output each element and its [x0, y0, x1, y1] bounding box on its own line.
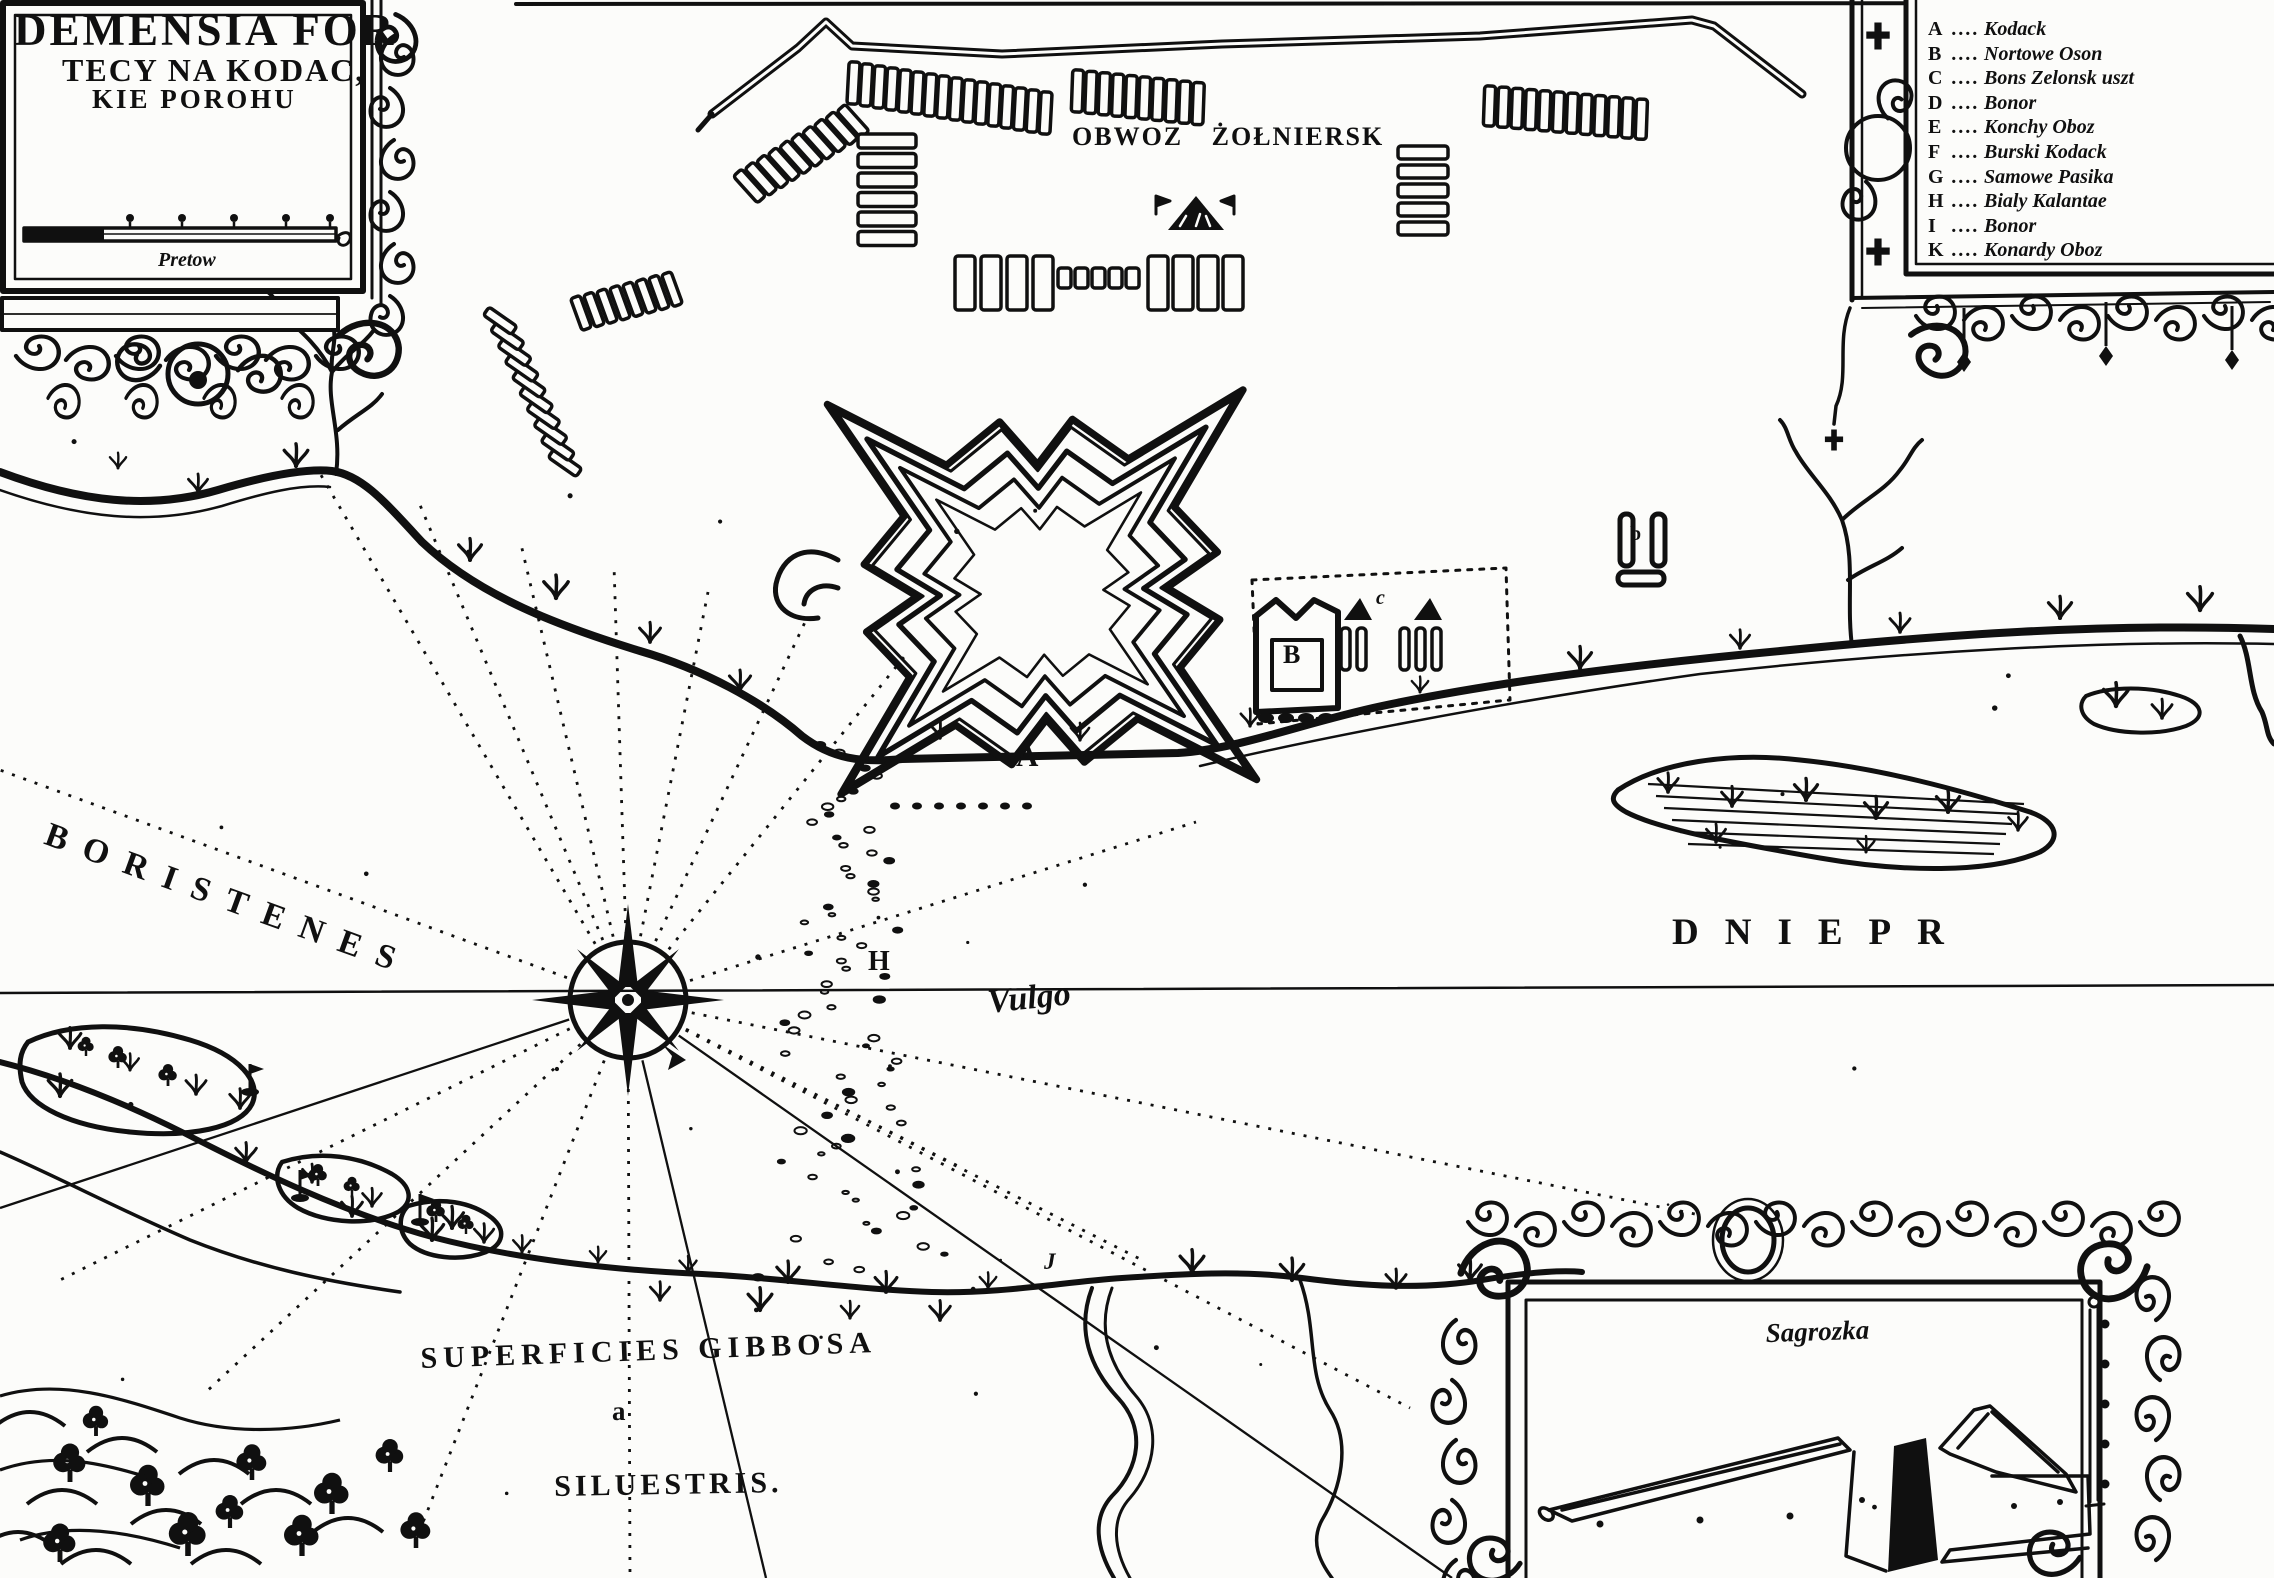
survey-ray	[690, 822, 1196, 981]
paper-speck	[1992, 705, 1997, 710]
paper-speck	[971, 1287, 976, 1292]
rapids-stone	[872, 1229, 881, 1234]
rapids-stone	[1022, 803, 1032, 810]
scroll-ornament	[1756, 1203, 1795, 1236]
rapids-stone	[868, 889, 879, 895]
scroll-ornament	[1468, 1203, 1507, 1236]
rapids-stone	[842, 1191, 849, 1194]
camp-barrack	[858, 154, 916, 168]
legend-letter: C	[1928, 67, 1952, 90]
scroll-ornament	[1660, 1203, 1699, 1236]
rapids-stone	[854, 1267, 864, 1272]
camp-barrack	[1497, 87, 1509, 127]
legend-entry: A....Kodack	[1928, 18, 2258, 43]
rapids-stone	[818, 1152, 825, 1155]
camp-barrack	[1398, 165, 1448, 178]
rapids-stone	[843, 1089, 854, 1096]
hill-mound	[27, 1490, 97, 1504]
camp-barrack	[1192, 82, 1204, 124]
camp-barrack	[1126, 268, 1139, 288]
camp-barrack	[1138, 77, 1150, 119]
scroll-ornament	[1840, 178, 1879, 222]
rapids-stone	[912, 1167, 920, 1171]
camp-barrack	[1075, 268, 1088, 288]
camp-barrack	[1223, 256, 1243, 310]
camp-barrack	[1566, 93, 1578, 133]
rapids-stone	[808, 1175, 816, 1180]
scale-tick	[230, 214, 238, 222]
pennant-base	[241, 1088, 259, 1096]
rapids-stone	[1000, 803, 1010, 810]
rapids-stone	[863, 1044, 869, 1047]
camp-barrack	[1092, 268, 1105, 288]
rapids-stone	[825, 812, 833, 816]
tassel-ornament	[2225, 350, 2239, 370]
tassel-ornament	[2099, 346, 2113, 366]
tree-glyph	[236, 1444, 266, 1480]
camp-barrack	[1552, 92, 1564, 132]
rapids-stone	[822, 1113, 832, 1118]
ruler-tick	[2101, 1360, 2110, 1369]
scale-tick	[126, 214, 134, 222]
rapids-stone	[853, 1199, 859, 1202]
rapids-stone	[864, 827, 874, 833]
scroll-ornament	[66, 347, 109, 380]
grass-tuft	[650, 1282, 669, 1302]
rapids-stone	[941, 1253, 947, 1256]
scale-bar-label: Pretow	[158, 250, 216, 270]
rapids-stone	[874, 996, 885, 1002]
rapids-stone	[789, 1027, 800, 1033]
rapids-stone	[897, 1212, 909, 1219]
survey-ray	[656, 620, 806, 941]
camp-barrack	[962, 80, 975, 123]
map-sheet: DEMENSIA FOR TECY NA KODAC, KIE POROHU P…	[0, 0, 2274, 1578]
tree-glyph	[376, 1439, 404, 1472]
scroll-ornament	[381, 140, 414, 179]
legend-entry: E....Konchy Oboz	[1928, 116, 2258, 141]
grass-tuft	[284, 444, 307, 468]
scale-tick	[326, 214, 334, 222]
camp-barrack	[1058, 268, 1071, 288]
camp-barrack	[1621, 98, 1633, 138]
grass-tuft	[841, 1301, 859, 1320]
survey-ray	[318, 470, 595, 944]
legend-leader: ....	[1952, 43, 1980, 66]
title-line-1: DEMENSIA FOR	[14, 8, 396, 53]
camp-small-letter: c	[1376, 588, 1385, 608]
legend-leader: ....	[1952, 67, 1980, 90]
rapids-letter: H	[868, 948, 890, 976]
rapids-stone	[884, 858, 894, 863]
rapids-stone	[801, 921, 808, 925]
scroll-ornament	[1612, 1213, 1651, 1246]
scroll-ornament	[1996, 1213, 2035, 1246]
legend-leader: ....	[1952, 239, 1980, 262]
scroll-ornament	[2060, 307, 2099, 340]
tree-glyph	[158, 1064, 176, 1086]
fortlet-bar	[1341, 628, 1350, 670]
camp-barrack	[1173, 256, 1193, 310]
scroll-ornament	[2044, 1203, 2083, 1236]
fortlet-bar	[1357, 628, 1366, 670]
survey-ray	[669, 652, 908, 949]
rapids-stone	[872, 898, 879, 901]
cross-ornament	[1866, 239, 1889, 266]
rapids-stone	[863, 1222, 869, 1225]
camp-barrack	[1085, 71, 1097, 113]
rapids-stone	[860, 765, 870, 770]
survey-ray	[420, 505, 603, 940]
scroll-ornament	[2012, 297, 2051, 330]
scroll-ornament	[126, 385, 157, 418]
rapids-stone	[857, 943, 866, 948]
scroll-ornament	[2140, 1203, 2179, 1236]
fortlet-bar	[1416, 628, 1425, 670]
paper-speck	[72, 439, 77, 444]
scroll-ornament	[371, 192, 404, 231]
scroll-ornament	[1433, 1380, 1466, 1423]
rapids-stone	[752, 1274, 763, 1280]
tree-glyph	[83, 1406, 108, 1436]
rapids-stone	[890, 803, 900, 810]
tree-glyph	[284, 1515, 319, 1556]
ruler-tick	[2101, 1400, 2110, 1409]
riverside-building	[1618, 572, 1664, 585]
tree-glyph	[130, 1465, 165, 1506]
camp-barrack	[858, 212, 916, 226]
fortlet-mark	[1298, 713, 1314, 723]
rapids-stone	[846, 874, 854, 878]
rapids-stone	[956, 803, 966, 810]
grass-tuft	[640, 622, 661, 644]
camp-barrack	[1178, 81, 1190, 123]
scroll-ornament	[371, 88, 404, 127]
grass-tuft	[1890, 613, 1910, 634]
grass-tuft	[186, 1075, 206, 1096]
legend-list: A....Kodack B....Nortowe Oson C....Bons …	[1928, 18, 2258, 264]
paper-speck	[1872, 1505, 1877, 1510]
scroll-ornament	[381, 244, 414, 283]
building-letter: b	[1630, 524, 1641, 544]
scroll-ornament	[1443, 1440, 1476, 1483]
legend-label: Konardy Oboz	[1984, 239, 2102, 262]
river-name-dniepr: DNIEPR	[1672, 914, 1970, 951]
scroll-ornament	[2204, 297, 2243, 330]
legend-label: Nortowe Oson	[1984, 43, 2102, 66]
grass-tuft	[1412, 676, 1428, 693]
legend-leader: ....	[1952, 92, 1980, 115]
paper-speck	[895, 1169, 900, 1174]
rapids-stone	[893, 928, 902, 933]
grass-tuft	[1795, 778, 1818, 802]
scroll-ornament	[1900, 1213, 1939, 1246]
fortlet-mark	[1278, 713, 1294, 723]
rapids-stone	[822, 803, 833, 810]
camp-barrack	[1039, 92, 1052, 135]
rapids-stone	[791, 1236, 801, 1242]
camp-barrack	[885, 68, 898, 111]
camp-barrack	[955, 256, 975, 310]
hill-mound	[313, 1518, 383, 1532]
legend-entry: H....Bialy Kalantae	[1928, 190, 2258, 215]
legend-entry: D....Bonor	[1928, 92, 2258, 117]
river-name-vulgo: Vulgo	[986, 977, 1072, 1020]
scroll-ornament	[48, 385, 79, 418]
hill-mound	[61, 1550, 131, 1564]
camp-barrack	[1511, 88, 1523, 128]
camp-barrack	[1198, 256, 1218, 310]
camp-barrack	[949, 78, 962, 121]
camp-barrack	[1098, 73, 1110, 115]
legend-letter: D	[1928, 92, 1952, 115]
title-line-2: TECY NA KODAC,	[62, 54, 365, 86]
camp-barrack	[1152, 78, 1164, 120]
cross-ornament	[1866, 23, 1889, 50]
grass-tuft	[2009, 812, 2028, 831]
ruler-tick	[2101, 1440, 2110, 1449]
paper-speck	[999, 1259, 1002, 1262]
camp-barrack	[1109, 268, 1122, 288]
rapids-stone	[778, 1160, 785, 1164]
camp-barrack	[1398, 146, 1448, 159]
scroll-ornament	[1964, 307, 2003, 340]
rapids-stone	[794, 1127, 806, 1134]
scroll-ornament	[2156, 307, 2195, 340]
paper-speck	[1719, 846, 1722, 849]
rapids-stone	[845, 1097, 856, 1104]
scroll-ornament	[1564, 1203, 1603, 1236]
rapids-stone	[842, 1135, 854, 1142]
legend-label: Bons Zelonsk uszt	[1984, 67, 2134, 90]
rapids-stone	[822, 981, 832, 987]
camp-barrack	[1525, 89, 1537, 129]
legend-label: Kodack	[1984, 18, 2046, 41]
compass-rose	[526, 898, 730, 1102]
camp-barrack	[924, 74, 937, 117]
rapids-stone	[837, 936, 845, 940]
paper-speck	[974, 1392, 978, 1396]
paper-speck	[1852, 1066, 1856, 1070]
grass-tuft	[474, 1224, 493, 1244]
pennant-base	[411, 1218, 429, 1226]
survey-ray	[614, 566, 626, 935]
compass-fleur	[662, 1044, 686, 1070]
paper-speck	[1154, 1345, 1159, 1350]
terrain-label-2: a	[612, 1398, 626, 1425]
paper-speck	[1083, 883, 1087, 887]
scale-tick	[178, 214, 186, 222]
camp-barrack	[858, 193, 916, 207]
scroll-ornament	[2147, 1457, 2180, 1500]
scroll-ornament	[1804, 1213, 1843, 1246]
legend-leader: ....	[1952, 141, 1980, 164]
paper-speck	[1259, 1363, 1262, 1366]
legend-letter: A	[1928, 18, 1952, 41]
camp-barrack	[1026, 90, 1039, 133]
paper-speck	[96, 496, 98, 498]
paper-speck	[754, 1308, 759, 1313]
legend-label: Bonor	[1984, 215, 2036, 238]
camp-barrack	[858, 173, 916, 187]
paper-speck	[1780, 792, 1784, 796]
title-line-3: KIE POROHU	[92, 86, 297, 113]
grass-tuft	[1658, 773, 1678, 794]
paper-speck	[220, 825, 224, 829]
survey-ray	[686, 1029, 1146, 1262]
camp-label: OBWOZ ŻOŁNIERSK	[1072, 124, 1384, 150]
grass-tuft	[930, 1301, 951, 1322]
camp-barrack	[1635, 99, 1647, 139]
ruler-tick	[2101, 1480, 2110, 1489]
grass-tuft	[110, 453, 126, 470]
legend-letter: B	[1928, 43, 1952, 66]
legend-label: Burski Kodack	[1984, 141, 2107, 164]
paper-speck	[555, 1067, 559, 1071]
scroll-ornament	[2252, 307, 2274, 340]
rapids-stone	[878, 1083, 885, 1086]
fortlet-letter: B	[1283, 642, 1300, 668]
paper-speck	[755, 954, 761, 960]
camp-barrack	[988, 84, 1001, 127]
hill-mound	[0, 1412, 65, 1426]
legend-leader: ....	[1952, 215, 1980, 238]
tree-glyph	[216, 1495, 244, 1528]
rapids-stone	[849, 789, 858, 794]
camp-barrack	[1398, 222, 1448, 235]
rapids-stone	[912, 803, 922, 810]
profile-cartouche-frame	[1508, 1199, 2104, 1578]
legend-entry: I....Bonor	[1928, 215, 2258, 240]
rapids-stone	[867, 850, 877, 855]
camp-barrack	[860, 64, 873, 107]
paper-speck	[888, 1064, 892, 1068]
rapids-stone	[780, 1020, 789, 1025]
fortlet-mark	[1258, 713, 1274, 723]
camp-barrack	[1148, 256, 1168, 310]
survey-ray	[692, 1013, 1700, 1215]
scroll-ornament	[282, 385, 313, 418]
grass-tuft	[980, 1272, 997, 1289]
paper-speck	[1033, 509, 1037, 513]
grass-tuft	[2104, 683, 2129, 708]
rapids-stone	[839, 843, 847, 848]
survey-ray	[0, 770, 567, 978]
scroll-ornament	[266, 347, 309, 380]
rapids-stone	[805, 952, 812, 955]
scroll-ornament	[238, 356, 281, 392]
grass-tuft	[1180, 1250, 1204, 1274]
stream-2	[1300, 1280, 1342, 1578]
rapids-stone	[833, 836, 840, 840]
fortlet-mark	[1318, 713, 1334, 723]
camp-barrack	[981, 256, 1001, 310]
grass-tuft	[1569, 646, 1592, 670]
legend-leader: ....	[1952, 166, 1980, 189]
pennant-base	[291, 1194, 309, 1202]
rapids-stone	[910, 1206, 917, 1209]
rapids-stone	[781, 1051, 790, 1056]
grass-tuft	[363, 1188, 382, 1207]
hill-ridge	[0, 1389, 340, 1430]
scroll-ornament	[16, 337, 59, 370]
camp-barrack	[1111, 74, 1123, 116]
tree-glyph	[314, 1473, 349, 1514]
river-centerline	[0, 985, 2274, 993]
legend-label: Bonor	[1984, 92, 2036, 115]
paper-speck	[568, 493, 573, 498]
cross-ornament	[1825, 430, 1843, 451]
tree-glyph	[400, 1512, 430, 1548]
scale-tick	[282, 214, 290, 222]
scroll-ornament	[2108, 297, 2147, 330]
paper-speck	[128, 1102, 133, 1107]
grass-tuft	[2188, 587, 2213, 612]
rapids-stone	[897, 1121, 906, 1126]
camp-barrack	[1165, 80, 1177, 122]
paper-speck	[121, 1378, 124, 1381]
star-fort	[827, 390, 1256, 794]
rapids-stone	[913, 1182, 923, 1188]
legend-leader: ....	[1952, 116, 1980, 139]
survey-ray	[686, 1029, 962, 1168]
rapids-stone	[837, 797, 845, 801]
camp-barrack	[1007, 256, 1027, 310]
camp-barrack	[1594, 95, 1606, 135]
camp-barrack	[858, 232, 916, 246]
grass-tuft	[2152, 699, 2172, 720]
camp-barrack	[1125, 75, 1137, 117]
fort-hornwork	[775, 552, 838, 619]
rapids-stone	[842, 967, 850, 971]
stream-1	[1085, 1288, 1136, 1578]
camp-barrack	[847, 62, 860, 105]
island-hatch	[1656, 796, 2018, 814]
island-hatch	[1688, 844, 1994, 854]
paper-speck	[877, 916, 881, 920]
islands	[20, 689, 2200, 1258]
riverside-building	[1652, 514, 1665, 566]
paper-speck	[718, 519, 722, 523]
camp-barrack	[873, 66, 886, 109]
camp-barrack	[898, 70, 911, 113]
stream-letter: J	[1044, 1250, 1056, 1273]
legend-label: Bialy Kalantae	[1984, 190, 2107, 213]
grass-tuft	[2049, 596, 2072, 620]
legend-entry: C....Bons Zelonsk uszt	[1928, 67, 2258, 92]
legend-entry: B....Nortowe Oson	[1928, 43, 2258, 68]
camp-barrack	[1071, 70, 1083, 112]
paper-speck	[954, 529, 959, 534]
camp-barrack	[1398, 184, 1448, 197]
scroll-ornament	[2147, 1337, 2180, 1380]
terrain-label-3: SILUESTRIS.	[554, 1468, 783, 1502]
hill-mound	[87, 1438, 157, 1452]
rapids-stone	[829, 913, 836, 916]
legend-letter: G	[1928, 166, 1952, 189]
rapids-stone	[827, 1005, 835, 1009]
rapids-stone	[868, 1035, 879, 1041]
paper-speck	[364, 871, 369, 876]
camp-barrack	[1580, 94, 1592, 134]
grass-tuft	[544, 575, 568, 600]
rapids-stone	[837, 1075, 845, 1079]
legend-letter: I	[1928, 215, 1952, 238]
legend-entry: G....Samowe Pasika	[1928, 166, 2258, 191]
survey-ray	[520, 540, 613, 937]
rapids-stone	[918, 1243, 929, 1250]
camp-barrack	[1033, 256, 1053, 310]
